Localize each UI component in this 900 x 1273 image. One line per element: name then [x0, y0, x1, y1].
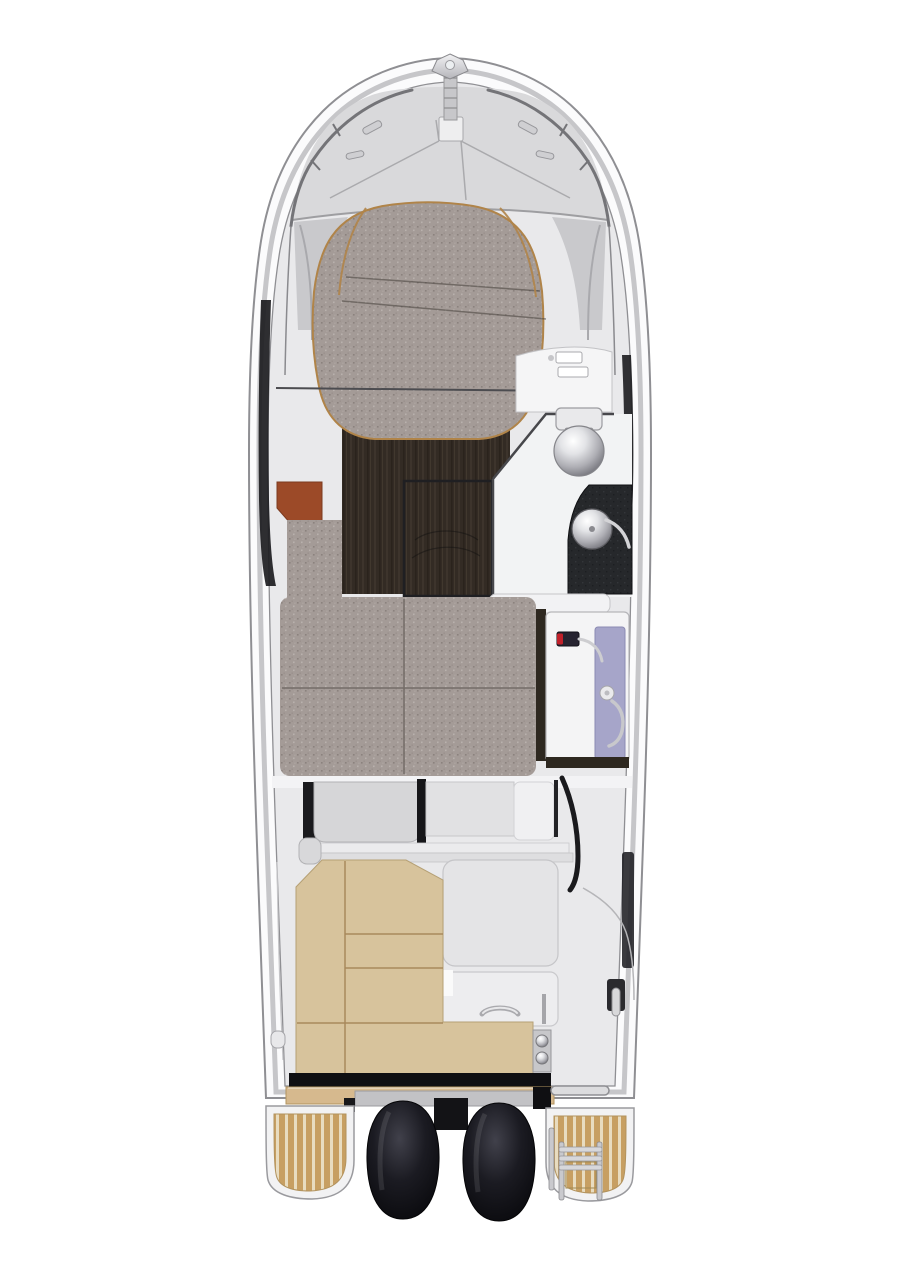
mid-berth-cushion: [280, 597, 536, 776]
windshield-frame-center: [417, 779, 426, 844]
module-slot: [443, 970, 453, 996]
boat-floor-plan: [0, 0, 900, 1273]
stern: [266, 1073, 634, 1221]
swim-platform-left-teak: [274, 1114, 346, 1191]
stern-grab-rail: [551, 1086, 609, 1095]
engine-well-corner-right: [533, 1087, 551, 1109]
bow-light-lens: [446, 61, 455, 70]
ladder-rung: [559, 1156, 602, 1161]
cockpit-table-module: [443, 860, 558, 966]
engine-connector: [434, 1098, 468, 1130]
toilet-bowl: [554, 426, 604, 476]
helm-console-panel: [426, 782, 514, 836]
transom-stripe: [289, 1073, 551, 1087]
mid-berth-cushion-column: [287, 520, 342, 600]
galley-side-panel: [536, 609, 546, 761]
floor-plan-svg: [0, 0, 900, 1273]
galley-sink-drain: [605, 691, 610, 696]
galley-base-strip: [546, 757, 629, 768]
starboard-cleat: [612, 988, 620, 1016]
ladder-rung: [559, 1147, 602, 1152]
vanity-knob: [548, 355, 554, 361]
vanity-item: [558, 367, 588, 377]
companionway-hatch: [314, 782, 420, 842]
vanity-item: [556, 352, 582, 363]
ski-pole: [542, 994, 546, 1024]
galley-stove-burner: [557, 634, 563, 645]
windshield-frame-thin: [554, 780, 558, 837]
helm-seat-panel: [514, 782, 554, 840]
cabin-floor-walnut-left: [342, 480, 403, 594]
gunwale-corner-left: [299, 838, 321, 864]
sink-drain: [589, 526, 595, 532]
cockpit-seat-module: [441, 972, 558, 1026]
cockpit-step-upper: [301, 843, 569, 853]
windlass-hatch: [439, 117, 463, 141]
ladder-rung: [559, 1165, 602, 1170]
ladder-outer-rail: [549, 1128, 554, 1190]
gunwale-dark-right: [622, 852, 634, 968]
port-cleat: [271, 1031, 285, 1048]
bench-latch: [536, 1052, 548, 1064]
v-berth-cushion: [313, 202, 544, 439]
bench-latch: [536, 1035, 548, 1047]
